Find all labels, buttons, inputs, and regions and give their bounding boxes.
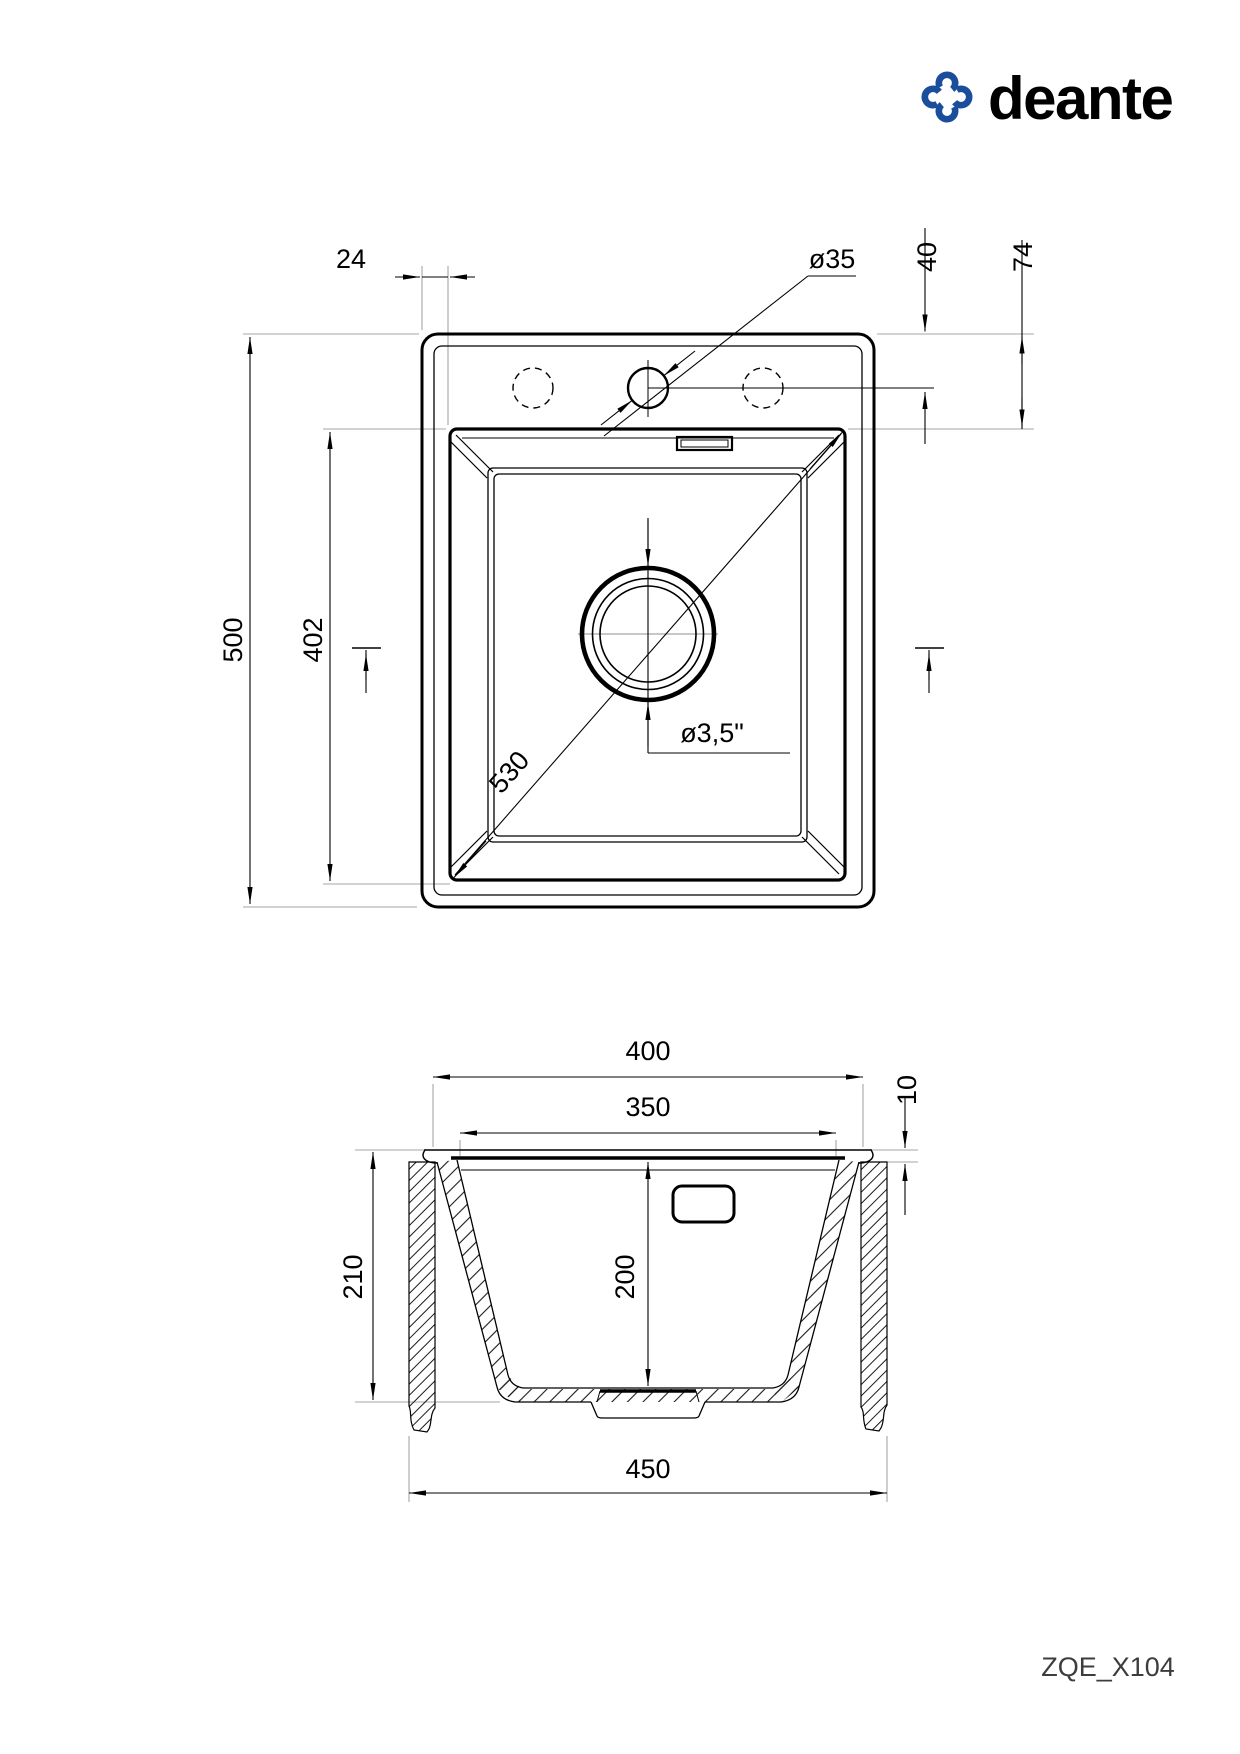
deante-logo: deante (922, 65, 1173, 132)
section-view: 400 350 10 210 200 450 (338, 1036, 922, 1502)
plan-view: 24 ø35 40 74 500 402 530 ø3,5" (218, 228, 1038, 907)
plan-dimension-lines (250, 228, 1022, 904)
dim-tap-hole-diameter: ø35 (809, 244, 856, 274)
dim-rim-offset: 24 (336, 244, 366, 274)
tap-hole-leader (601, 276, 856, 436)
technical-drawing-canvas: deante (0, 0, 1240, 1754)
dim-drain-diameter: ø3,5" (680, 718, 744, 748)
overflow-slot-plan (677, 437, 732, 450)
overflow-section (673, 1186, 734, 1222)
dim-overall-width: 400 (625, 1036, 670, 1066)
drawing-code: ZQE_X104 (1041, 1652, 1175, 1682)
dim-bowl-top-offset: 74 (1008, 242, 1038, 272)
dim-bowl-diagonal: 530 (483, 745, 535, 799)
tap-holes (513, 360, 934, 417)
diagonal-dimension (454, 433, 842, 878)
dim-overall-depth: 210 (338, 1254, 368, 1299)
drawing-page: deante (0, 0, 1240, 1754)
dim-bowl-depth: 200 (610, 1254, 640, 1299)
dim-rim-height: 10 (892, 1075, 922, 1105)
deante-logo-icon (922, 72, 972, 122)
logo-wordmark: deante (988, 65, 1173, 132)
drain-boss (591, 1402, 705, 1418)
tap-hole-optional-left (513, 368, 553, 408)
dim-overall-length: 500 (218, 617, 248, 662)
dim-tap-hole-offset: 40 (912, 242, 942, 272)
dim-bowl-length: 402 (298, 617, 328, 662)
dim-min-cabinet-width: 450 (625, 1454, 670, 1484)
dim-bowl-width: 350 (625, 1092, 670, 1122)
